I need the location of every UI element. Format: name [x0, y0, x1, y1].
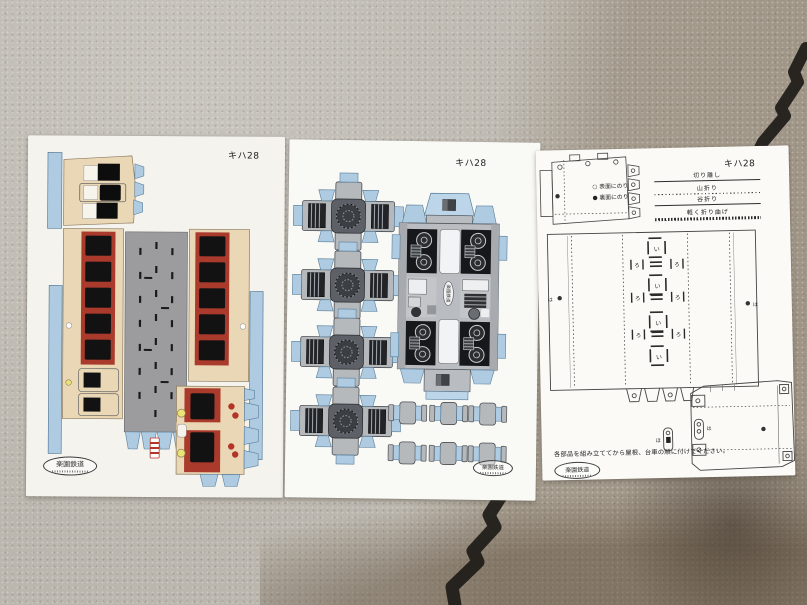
sheet-right-template: い い い い ろ ろ ろ ろ ろ ろ は は [536, 145, 796, 480]
equipment-drawing-left [406, 277, 437, 318]
railway-logo-subtext [562, 474, 593, 477]
mark-ro: ろ [636, 332, 642, 339]
sheet-title: キハ28 [724, 156, 756, 170]
mark-ro: ろ [675, 294, 681, 301]
mark-ro: ろ [634, 262, 640, 269]
mark-ha: は [548, 297, 553, 303]
legend-row-valley-fold: 谷折り [655, 195, 761, 208]
equipment-drawing-right [460, 278, 491, 320]
railway-logo: 楽園鉄道 [473, 460, 513, 477]
stripe-part [150, 438, 159, 458]
sheet-title: キハ28 [228, 148, 260, 161]
railway-logo-text: 楽園鉄道 [565, 464, 589, 474]
mark-ho: ほ [656, 438, 661, 444]
sheet-title: キハ28 [455, 156, 487, 169]
carpet-scene: キハ28 楽園鉄道 [0, 0, 807, 605]
mark-i: い [654, 246, 660, 253]
axle-part [388, 442, 426, 465]
mark-ro: ろ [676, 331, 682, 338]
spacer-part-ha: は [694, 419, 711, 439]
axle-part [469, 403, 507, 426]
body-template: い い い い ろ ろ ろ ろ ろ ろ は は [546, 230, 760, 403]
roof-template-tabs [628, 165, 640, 219]
sheet-left-body-parts: キハ28 楽園鉄道 [26, 135, 285, 498]
axle-part [430, 402, 468, 425]
bogie-part [290, 377, 401, 465]
mark-i: い [654, 283, 660, 290]
glue-marks: ○ 表面にのり ● 裏面にのり [592, 182, 628, 205]
body-side-right [189, 229, 250, 381]
body-side-left [62, 228, 123, 418]
legend-row-cut: 切り離し [654, 171, 760, 184]
railway-logo-text: 楽園鉄道 [56, 459, 84, 469]
fold-legend: 切り離し 山折り 谷折り 軽く折り曲げ [654, 171, 761, 223]
streak-top-right [758, 48, 806, 152]
cab-end-part [48, 152, 144, 229]
sheet-left-art [26, 135, 285, 498]
underframe-part: 楽園鉄道 [390, 193, 508, 401]
railway-logo: 楽園鉄道 [43, 456, 97, 475]
legend-row-mountain-fold: 山折り [654, 184, 760, 196]
mark-i: い [655, 320, 661, 327]
railway-logo-subtext [52, 470, 88, 472]
axle-part [429, 442, 467, 465]
mark-ha: は [706, 426, 711, 432]
cab-front-part [176, 386, 259, 486]
mark-ro: ろ [674, 261, 680, 268]
sheet-middle-chassis-parts: 楽園鉄道 キハ28 楽園鉄道 [285, 139, 541, 500]
mark-i: い [656, 354, 662, 361]
streak-bottom [452, 490, 505, 605]
glue-back-label: ● 裏面にのり [592, 193, 628, 205]
sheet-middle-art: 楽園鉄道 [285, 139, 541, 500]
legend-row-light-bend: 軽く折り曲げ [655, 208, 761, 220]
railway-logo-subtext [480, 471, 507, 473]
bottom-tabs [627, 387, 694, 401]
glue-front-label: ○ 表面にのり [592, 182, 628, 194]
mark-ro: ろ [635, 295, 641, 302]
mark-ha: は [753, 302, 758, 308]
railway-logo-text: 楽園鉄道 [482, 462, 504, 470]
